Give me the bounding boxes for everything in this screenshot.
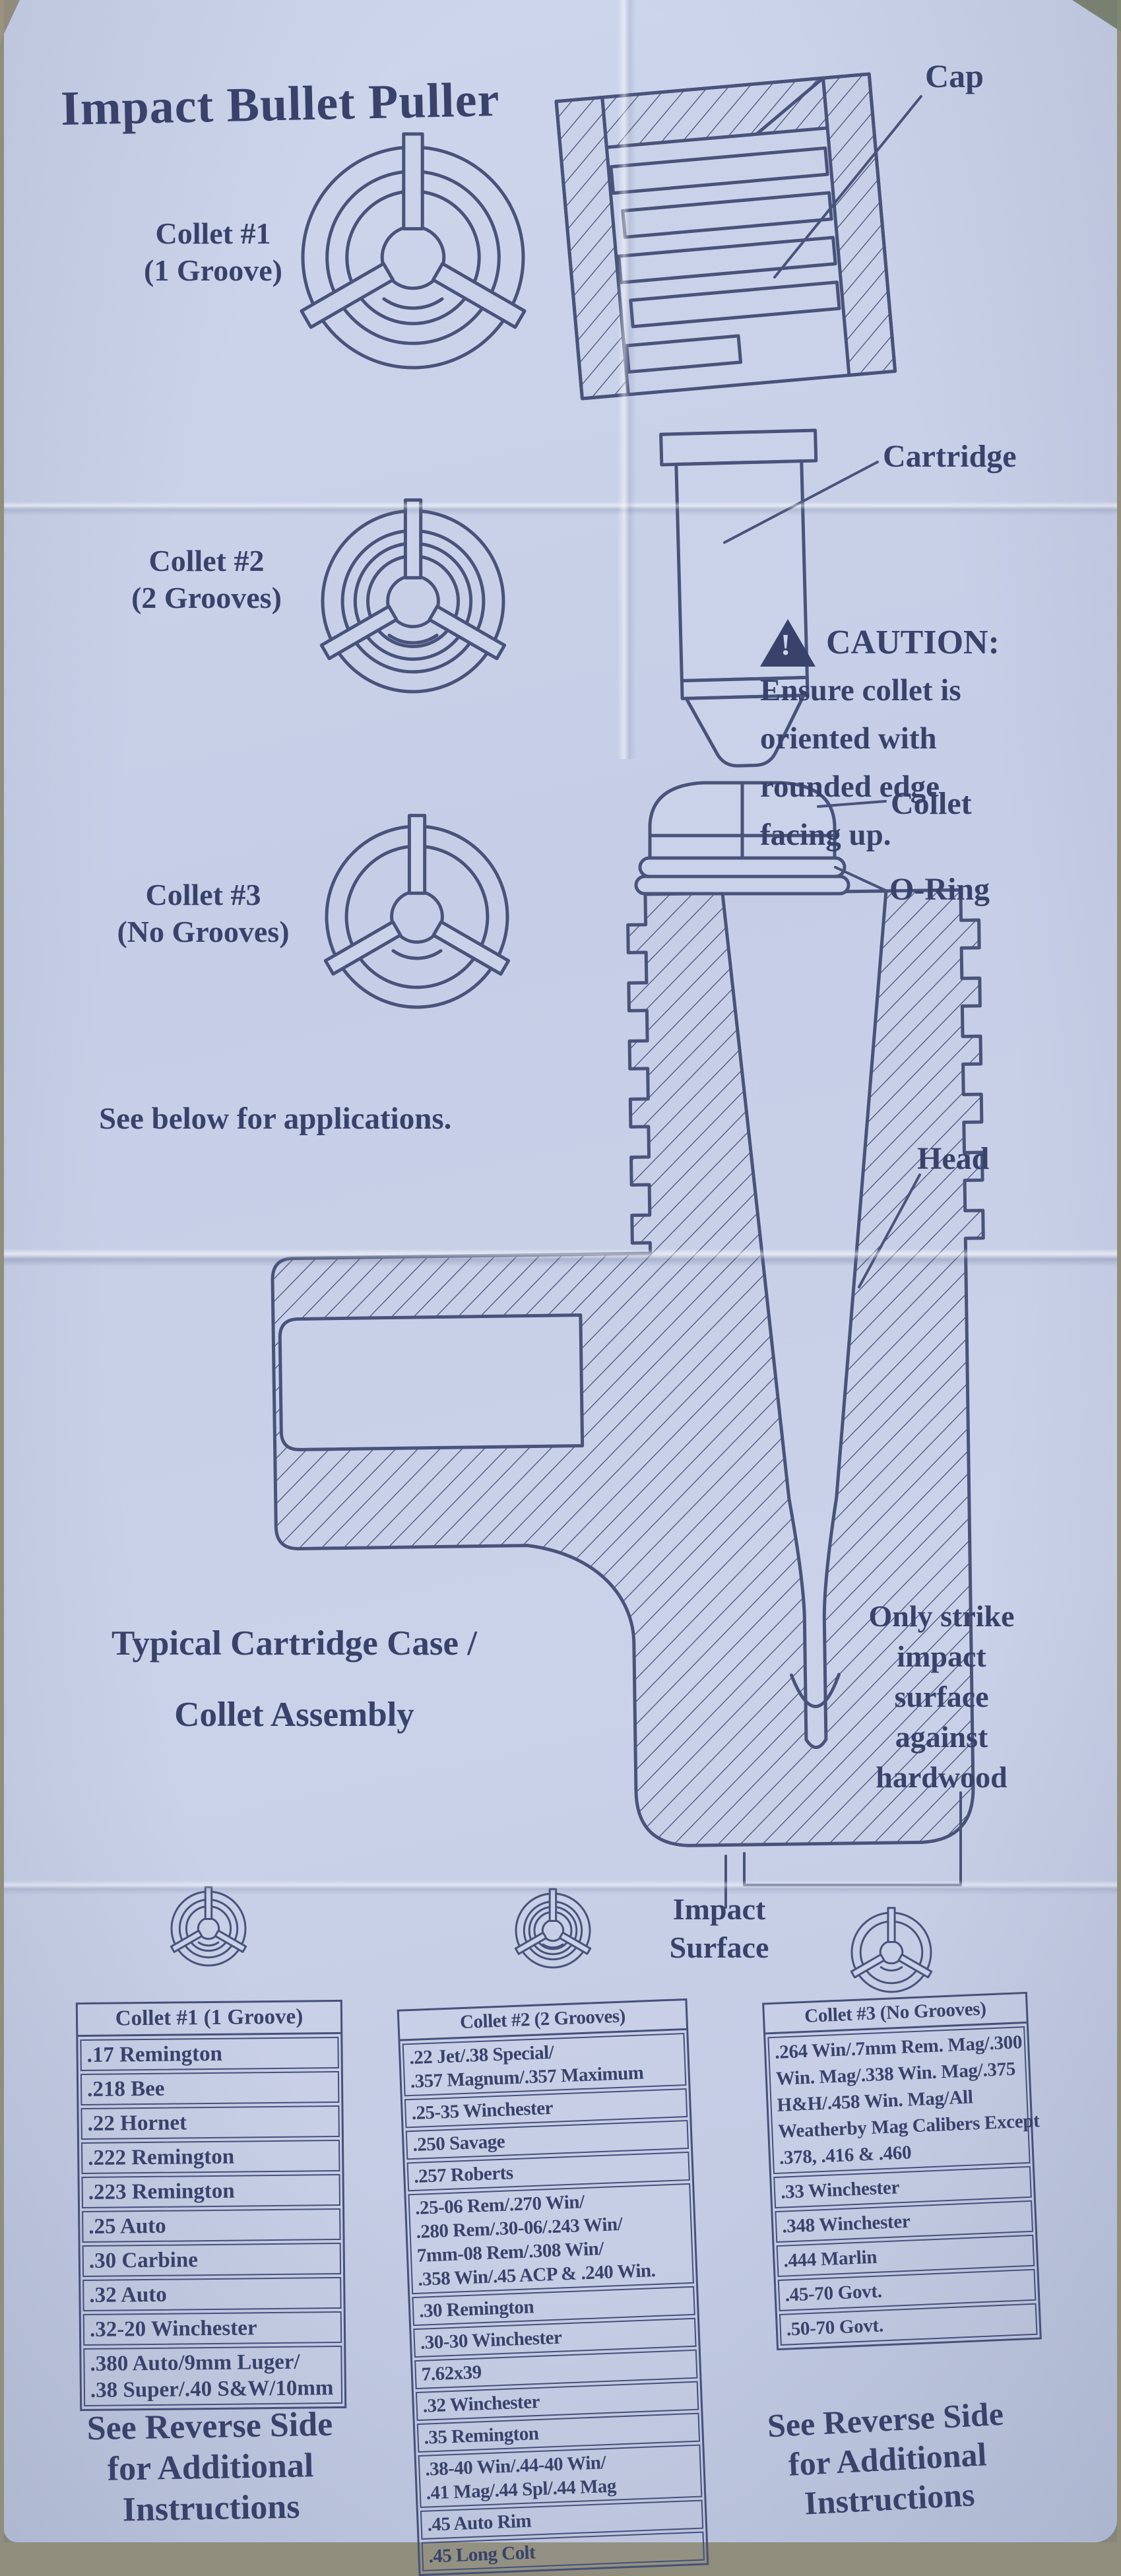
caliber-table-3: Collet #3 (No Grooves).264 Win/.7mm Rem.… [762, 1992, 1042, 2350]
caliber-entry: .348 Winchester [782, 2203, 1027, 2239]
photographed-instruction-sheet: { "document": { "title": "Impact Bullet … [0, 0, 1121, 2565]
table-row: .22 Hornet [80, 2105, 339, 2140]
table-row: .380 Auto/9mm Luger/.38 Super/.40 S&W/10… [83, 2346, 342, 2406]
caliber-entry: .32 Winchester [422, 2384, 692, 2418]
table-row: .223 Remington [82, 2174, 340, 2208]
table-row: .32 Auto [82, 2277, 341, 2311]
table-header: Collet #1 (1 Groove) [78, 2002, 340, 2037]
caliber-entry: .45 Auto Rim [427, 2503, 697, 2537]
caliber-entry: .22 Hornet [87, 2108, 333, 2137]
caution-line: oriented with [760, 715, 1064, 763]
caliber-entry: .45-70 Govt. [785, 2272, 1029, 2308]
strike-note: Only strike impact surface against hardw… [833, 1596, 1050, 1797]
strike-note-line: hardwood [833, 1757, 1050, 1797]
see-below-note: See below for applications. [99, 1101, 451, 1137]
caution-line: rounded edge [760, 763, 1064, 811]
table-row: .264 Win/.7mm Rem. Mag/.300Win. Mag/.338… [767, 2026, 1030, 2174]
collet-top-view-icon [325, 816, 508, 1007]
caliber-entry: .444 Marlin [783, 2237, 1028, 2274]
reverse-note-line: for Additional [68, 2445, 352, 2490]
caliber-entry: .380 Auto/9mm Luger/ [90, 2348, 335, 2377]
table-row: .32-20 Winchester [83, 2311, 342, 2346]
caliber-table-1: Collet #1 (1 Groove).17 Remington.218 Be… [76, 2000, 346, 2411]
oring-label: O-Ring [889, 871, 990, 908]
caliber-entry: .257 Roberts [414, 2154, 684, 2189]
collet-top-view-icon [321, 500, 504, 692]
table-row: .25-06 Rem/.270 Win/.280 Rem/.30-06/.243… [408, 2183, 694, 2294]
caliber-entry: .32 Auto [89, 2280, 335, 2309]
caliber-entry: .17 Remington [86, 2039, 332, 2068]
caliber-entry: .30-30 Winchester [420, 2321, 689, 2355]
assembly-caption: Typical Cartridge Case / Collet Assembly [96, 1608, 492, 1750]
caution-title: CAUTION: [826, 619, 1000, 667]
head-label: Head [917, 1140, 989, 1177]
caliber-table-2: Collet #2 (2 Grooves).22 Jet/.38 Special… [397, 1998, 709, 2576]
caliber-entry: .33 Winchester [780, 2169, 1025, 2205]
table-row: .30 Carbine [82, 2243, 341, 2277]
caliber-entry: .35 Remington [424, 2416, 693, 2450]
cartridge-label: Cartridge [883, 438, 1017, 475]
warning-triangle-icon [760, 619, 816, 667]
table-row: .218 Bee [80, 2071, 339, 2105]
strike-note-line: Only strike [833, 1596, 1050, 1636]
reverse-side-note-left: See Reverse Side for Additional Instruct… [67, 2404, 353, 2531]
reverse-side-note-right: See Reverse Side for Additional Instruct… [743, 2393, 1033, 2526]
caliber-entry: .30 Remington [419, 2289, 689, 2323]
caliber-entry: .218 Bee [87, 2074, 333, 2103]
collet-2-sub: (2 Grooves) [78, 579, 335, 616]
collet-2-legend: Collet #2 (2 Grooves) [78, 543, 335, 616]
caution-heading: CAUTION: [760, 619, 1064, 667]
caliber-entry: .222 Remington [88, 2142, 333, 2171]
caliber-entry: .50-70 Govt. [786, 2306, 1031, 2342]
caliber-entry: .38 Super/.40 S&W/10mm [90, 2375, 336, 2404]
collet-1-name: Collet #1 [84, 215, 342, 252]
table-row: .25 Auto [82, 2208, 340, 2243]
reverse-note-line: See Reverse Side [67, 2404, 352, 2449]
collet-top-view-icon [851, 1908, 931, 1992]
caliber-entry: 7.62x39 [421, 2352, 691, 2387]
caution-line: Ensure collet is [760, 667, 1064, 715]
caution-line: facing up. [760, 811, 1064, 859]
caliber-entry: .223 Remington [88, 2177, 334, 2206]
reverse-note-line: Instructions [69, 2486, 354, 2531]
cap-label: Cap [925, 57, 984, 95]
page-title: Impact Bullet Puller [60, 72, 500, 137]
impact-surface-line1: Impact [645, 1890, 793, 1929]
caliber-entry: .250 Savage [412, 2123, 682, 2157]
caution-block: CAUTION: Ensure collet is oriented with … [760, 619, 1064, 859]
cap-diagram [556, 74, 895, 399]
collet-3-sub: (No Grooves) [75, 913, 332, 950]
caliber-entry: .25 Auto [88, 2211, 334, 2240]
table-row: .22 Jet/.38 Special/.357 Magnum/.357 Max… [402, 2033, 687, 2096]
collet-top-view-icon [515, 1889, 590, 1967]
strike-note-line: against [833, 1717, 1050, 1757]
caliber-entry: .25-35 Winchester [411, 2091, 681, 2125]
collet-top-view-icon [171, 1887, 245, 1965]
table-row: .17 Remington [80, 2037, 338, 2071]
caliber-entry: .45 Long Colt [428, 2534, 698, 2569]
table-row: .222 Remington [81, 2140, 340, 2174]
collet-1-legend: Collet #1 (1 Groove) [84, 215, 342, 289]
collet-3-name: Collet #3 [75, 876, 332, 913]
collet-1-sub: (1 Groove) [84, 252, 342, 289]
assembly-caption-line2: Collet Assembly [96, 1679, 492, 1750]
caliber-entry: .32-20 Winchester [90, 2314, 335, 2343]
collet-3-legend: Collet #3 (No Grooves) [75, 876, 332, 950]
collet-2-name: Collet #2 [78, 543, 335, 579]
impact-surface-line2: Surface [645, 1929, 793, 1967]
impact-surface-label: Impact Surface [645, 1890, 793, 1967]
caliber-entry: .30 Carbine [89, 2245, 335, 2274]
assembly-caption-line1: Typical Cartridge Case / [96, 1608, 492, 1679]
strike-note-line: surface [833, 1676, 1050, 1717]
table-row: .38-40 Win/.44-40 Win/.41 Mag/.44 Spl/.4… [418, 2445, 703, 2508]
strike-note-line: impact [833, 1636, 1050, 1676]
